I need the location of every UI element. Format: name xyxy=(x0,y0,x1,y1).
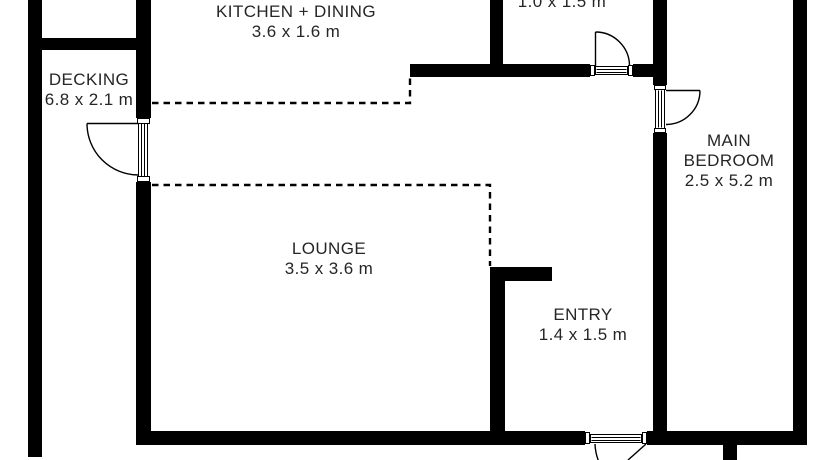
wall-bottom-east xyxy=(647,431,807,445)
wall-exterior-right xyxy=(793,0,807,445)
door-jamb xyxy=(586,433,590,444)
room-dims: 3.6 x 1.6 m xyxy=(216,22,376,42)
wall-entry-top-stub xyxy=(490,267,552,281)
door-sill xyxy=(591,435,642,443)
room-label-kitchen-dining: KITCHEN + DINING 3.6 x 1.6 m xyxy=(216,2,376,42)
bedroom-door-icon xyxy=(655,86,701,133)
door-jamb xyxy=(591,66,595,76)
room-label-lounge: LOUNGE 3.5 x 3.6 m xyxy=(285,239,374,279)
door-leaf-line xyxy=(628,444,646,460)
floor-plan-drawing xyxy=(0,0,834,460)
room-dims: 2.5 x 5.2 m xyxy=(679,171,779,191)
room-label-main-bedroom: MAIN BEDROOM 2.5 x 5.2 m xyxy=(679,131,779,191)
door-jamb xyxy=(629,66,633,76)
room-dims: 3.5 x 3.6 m xyxy=(285,259,374,279)
room-dims: 1.0 x 1.5 m xyxy=(518,0,607,12)
wall-top-horizontal-west xyxy=(410,64,590,77)
wall-decking-right-lower xyxy=(136,182,151,445)
door-jamb xyxy=(655,86,666,90)
utility-door-icon xyxy=(591,32,633,76)
door-jamb xyxy=(138,177,150,182)
wall-divider-lower xyxy=(653,133,667,431)
kitchen-dining-boundary-dashed-line xyxy=(152,77,410,103)
room-name: LOUNGE xyxy=(285,239,374,259)
entry-door-icon xyxy=(586,433,647,460)
door-sill xyxy=(596,67,628,75)
wall-divider-upper xyxy=(653,0,667,85)
door-jamb xyxy=(643,433,647,444)
room-label-entry: ENTRY 1.4 x 1.5 m xyxy=(539,305,628,345)
room-label-utility: 1.0 x 1.5 m xyxy=(518,0,607,12)
wall-entry-left xyxy=(490,267,505,431)
open-plan-boundaries xyxy=(152,77,490,266)
floor-plan-canvas: KITCHEN + DINING 3.6 x 1.6 m 1.0 x 1.5 m… xyxy=(0,0,834,460)
room-name: ENTRY xyxy=(539,305,628,325)
wall-decking-right-upper xyxy=(136,0,151,118)
door-jamb xyxy=(655,129,666,133)
door-swing-arc xyxy=(666,91,700,125)
door-sill xyxy=(656,90,665,129)
room-name: KITCHEN + DINING xyxy=(216,2,376,22)
wall-decking-top xyxy=(28,38,150,50)
door-swing-arc xyxy=(596,32,630,66)
room-dims: 1.4 x 1.5 m xyxy=(539,325,628,345)
door-swing-arc xyxy=(87,124,139,176)
door-swing-arc xyxy=(595,444,599,460)
room-name: MAIN BEDROOM xyxy=(679,131,779,171)
glazed-door-leaf xyxy=(139,124,148,177)
room-dims: 6.8 x 2.1 m xyxy=(45,90,134,110)
room-label-decking: DECKING 6.8 x 2.1 m xyxy=(45,70,134,110)
walls xyxy=(28,0,807,460)
wall-bottom-west xyxy=(136,431,585,445)
wall-stub-below-bottom xyxy=(723,445,737,460)
decking-door-icon xyxy=(87,119,150,182)
room-name: DECKING xyxy=(45,70,134,90)
wall-exterior-left xyxy=(28,0,42,457)
door-jamb xyxy=(138,119,150,124)
